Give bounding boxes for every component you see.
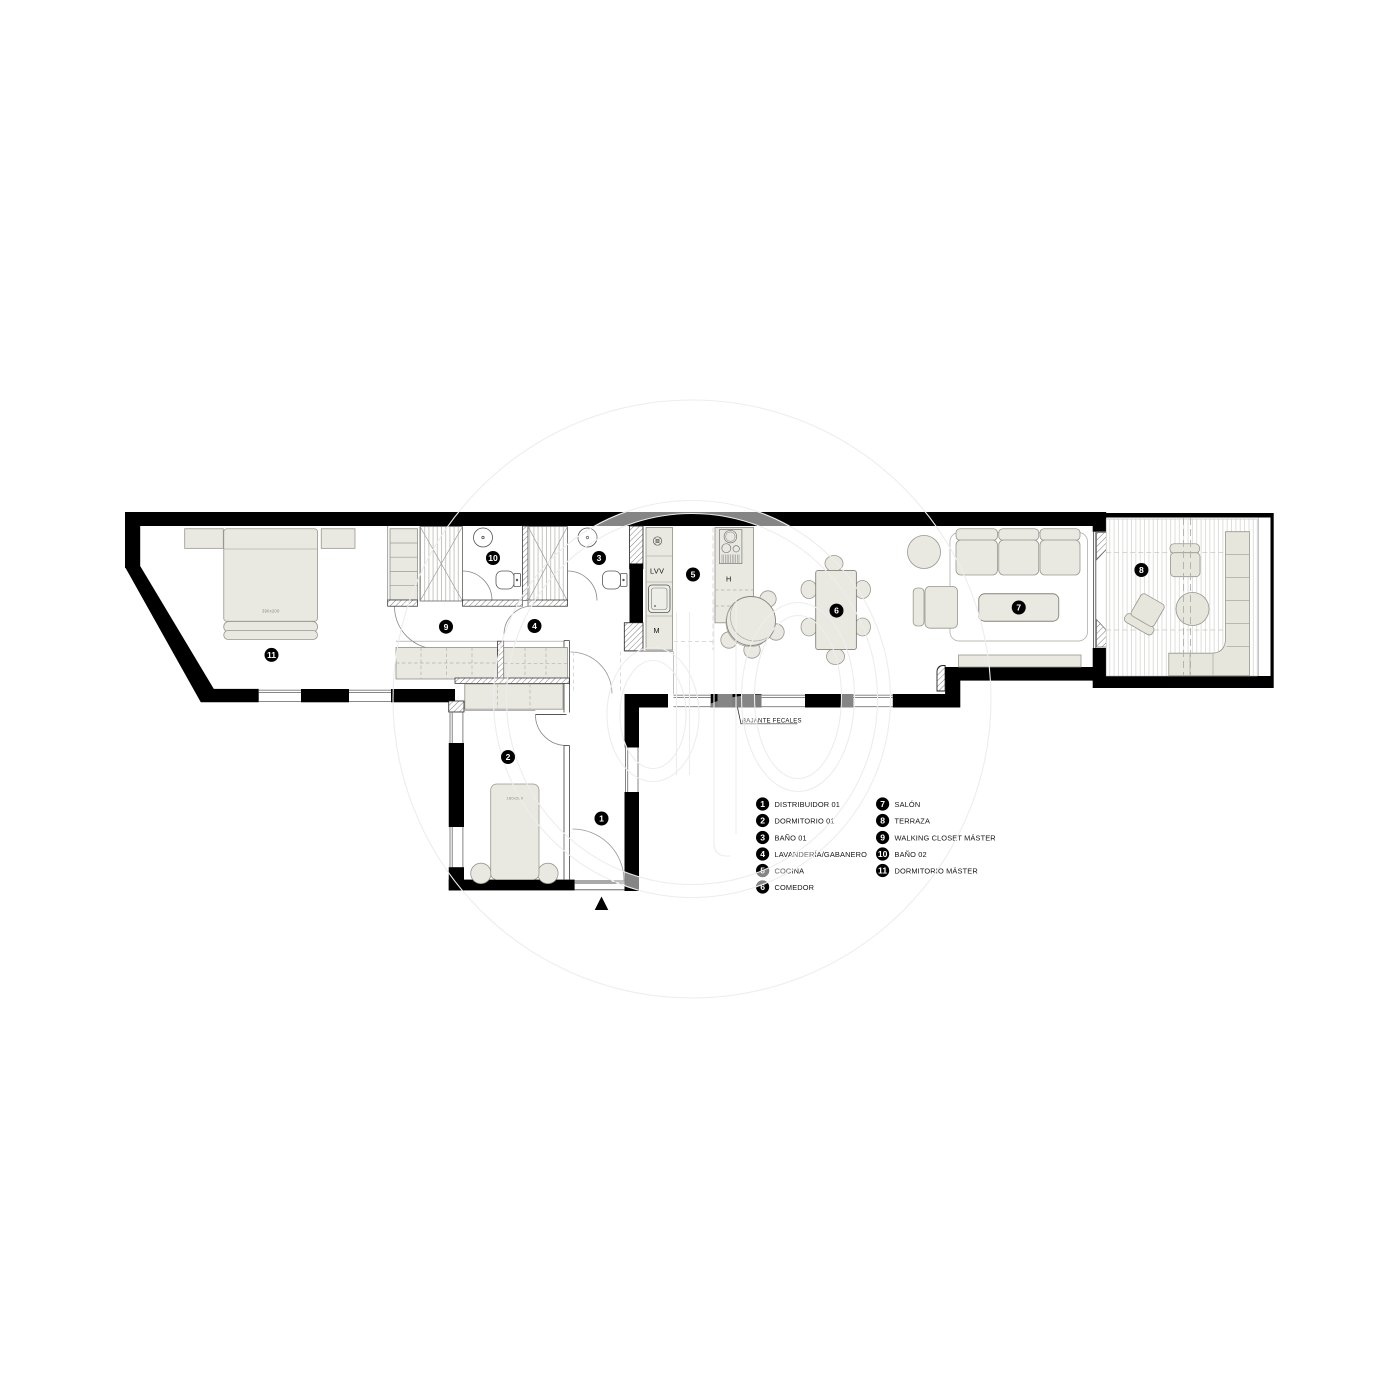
svg-text:H: H (726, 575, 732, 584)
svg-text:WALKING CLOSET MÁSTER: WALKING CLOSET MÁSTER (895, 833, 996, 842)
svg-text:DISTRIBUIDOR 01: DISTRIBUIDOR 01 (775, 800, 841, 809)
svg-text:4: 4 (760, 849, 765, 859)
svg-text:2: 2 (506, 752, 511, 762)
svg-text:3: 3 (760, 833, 765, 843)
svg-text:390x200: 390x200 (262, 609, 280, 614)
svg-text:8: 8 (1139, 565, 1144, 575)
svg-text:10: 10 (878, 849, 888, 859)
svg-text:BAÑO 01: BAÑO 01 (775, 833, 807, 842)
svg-text:5: 5 (691, 570, 696, 580)
svg-text:3: 3 (597, 553, 602, 563)
svg-text:11: 11 (878, 866, 887, 876)
svg-text:DORMITORIO 01: DORMITORIO 01 (775, 816, 835, 825)
svg-text:1: 1 (760, 799, 765, 809)
svg-text:BAÑO 02: BAÑO 02 (895, 850, 927, 859)
svg-text:1: 1 (599, 814, 604, 824)
svg-text:TERRAZA: TERRAZA (895, 816, 931, 825)
svg-text:M: M (654, 626, 660, 635)
svg-text:COMEDOR: COMEDOR (775, 883, 815, 892)
svg-text:6: 6 (834, 606, 839, 616)
svg-text:LVV: LVV (650, 567, 664, 576)
svg-text:2: 2 (760, 816, 765, 826)
svg-text:SALÓN: SALÓN (895, 800, 921, 809)
svg-text:8: 8 (880, 816, 885, 826)
svg-text:9: 9 (444, 622, 449, 632)
svg-text:11: 11 (267, 650, 276, 660)
svg-text:4: 4 (532, 621, 537, 631)
svg-text:9: 9 (880, 833, 885, 843)
svg-text:7: 7 (880, 799, 885, 809)
svg-text:7: 7 (1016, 603, 1021, 613)
svg-text:10: 10 (488, 553, 498, 563)
